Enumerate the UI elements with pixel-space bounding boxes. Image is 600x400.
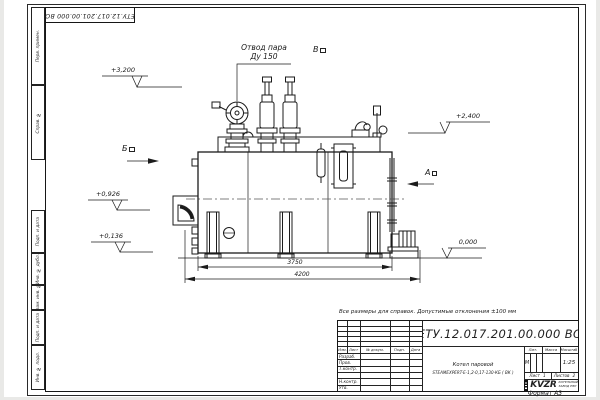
staff-nkontr: Н.контр. bbox=[339, 378, 360, 384]
product-name-line2: STEAMEXPERT-Е-1,2-0,17-130-КБ ( ВК ) bbox=[432, 370, 513, 375]
dimension-4200: 4200 bbox=[274, 272, 330, 279]
sheet-cell: Лист 1 bbox=[524, 372, 551, 379]
rev-col-podp: Подп. bbox=[390, 346, 409, 353]
rev-col-dokum: № докум. bbox=[360, 346, 390, 353]
staff-prov: Пров. bbox=[339, 359, 360, 365]
reference-note: Все размеры для справок. Допустимые откл… bbox=[339, 309, 516, 315]
view-marker-a-letter: А bbox=[425, 168, 430, 177]
rev-col-data: Дата bbox=[409, 346, 422, 353]
view-marker-b-letter: Б bbox=[122, 144, 128, 153]
product-name-line1: Котел паровой bbox=[453, 362, 494, 368]
scale-value: 1:25 bbox=[560, 353, 578, 372]
title-designation-text: ЕТУ.12.017.201.00.000 ВО bbox=[422, 327, 578, 341]
kvzr-logo-icon bbox=[524, 380, 528, 391]
scale-header: Масштаб bbox=[560, 346, 578, 353]
elevation-0136: +0,136 bbox=[88, 233, 134, 240]
sheet-label: Лист bbox=[529, 373, 540, 378]
sheets-value: 2 bbox=[572, 373, 575, 378]
elevation-0000: 0,000 bbox=[446, 239, 490, 246]
rev-col-izm: Изм. bbox=[338, 346, 347, 353]
view-marker-square bbox=[320, 48, 326, 54]
view-marker-b: Б bbox=[122, 145, 135, 154]
mass-header: Масса bbox=[542, 346, 560, 353]
view-marker-square bbox=[432, 171, 438, 177]
view-marker-a: А bbox=[425, 169, 437, 178]
title-block: ЕТУ.12.017.201.00.000 ВО Изм. Лист № док… bbox=[337, 320, 579, 392]
lit-value: М bbox=[524, 353, 530, 372]
view-marker-v: В bbox=[313, 46, 326, 55]
drawing-sheet: Перв. примен. Справ. № Подп. и дата Инв.… bbox=[0, 0, 600, 400]
view-marker-square bbox=[129, 147, 135, 153]
dimension-3750: 3750 bbox=[270, 260, 320, 267]
elevation-2400: +2,400 bbox=[443, 113, 493, 120]
logo-subtext-2: ЗАВОД РЭП bbox=[559, 385, 579, 389]
product-name-cell: Котел паровой STEAMEXPERT-Е-1,2-0,17-130… bbox=[422, 346, 524, 391]
format-label: Формат А3 bbox=[505, 391, 585, 398]
view-marker-v-letter: В bbox=[313, 45, 319, 54]
sheet-value: 1 bbox=[543, 373, 546, 378]
sheets-cell: Листов 2 bbox=[551, 372, 578, 379]
staff-utv: Утв. bbox=[339, 385, 360, 391]
sheets-label: Листов bbox=[554, 373, 570, 378]
steam-outlet-callout-line2: Ду 150 bbox=[234, 53, 294, 61]
lit-header: Лит. bbox=[524, 346, 542, 353]
elevation-3200: +3,200 bbox=[98, 67, 148, 74]
title-designation: ЕТУ.12.017.201.00.000 ВО bbox=[422, 321, 578, 346]
steam-outlet-callout-line1: Отвод пара bbox=[234, 44, 294, 52]
rev-col-list: Лист bbox=[347, 346, 360, 353]
elevation-0926: +0,926 bbox=[85, 191, 131, 198]
logo-text: KVZR bbox=[530, 380, 556, 390]
